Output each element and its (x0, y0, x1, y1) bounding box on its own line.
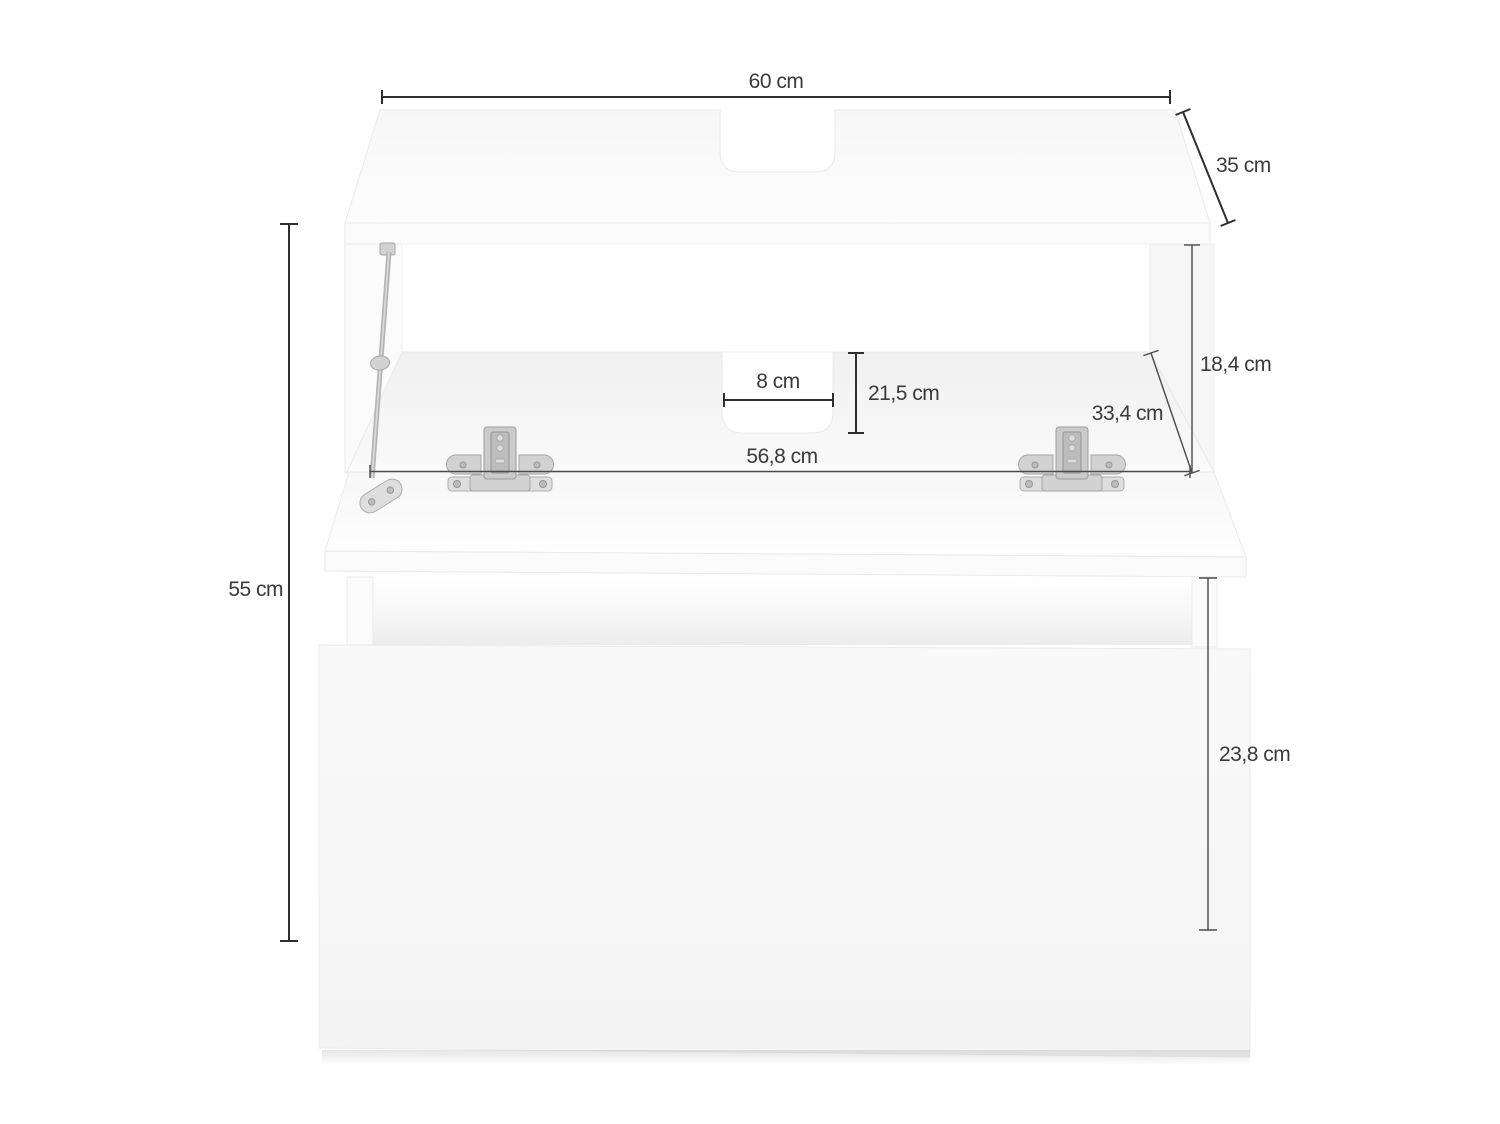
interior-width-label: 56,8 cm (746, 445, 817, 468)
gap-opening (373, 577, 1192, 645)
overall-height-label: 55 cm (228, 578, 283, 601)
vanity-cabinet (319, 110, 1250, 1066)
dimension-cutout-width: 8 cm (724, 370, 833, 407)
drawer-height-label: 23,8 cm (1219, 743, 1290, 766)
drawer-shadow (322, 1050, 1250, 1066)
interior-depth-label: 33,4 cm (1092, 402, 1163, 425)
gap-right-stile (1192, 577, 1217, 647)
interior-height-label: 18,4 cm (1200, 353, 1271, 376)
top-panel-front-edge (345, 223, 1210, 244)
dimension-overall-width: 60 cm (382, 70, 1170, 104)
overall-depth-label: 35 cm (1216, 154, 1271, 177)
cutout-depth-label: 21,5 cm (868, 382, 939, 405)
cutout-width-label: 8 cm (756, 370, 800, 393)
gap-left-stile (347, 577, 373, 645)
top-panel-surface (345, 110, 1210, 223)
dimension-overall-height: 55 cm (228, 224, 298, 941)
overall-width-label: 60 cm (749, 70, 804, 93)
drawer-front (319, 645, 1250, 1057)
product-dimension-diagram: 60 cm 35 cm 55 cm 8 cm (0, 0, 1500, 1124)
compartment-back-wall (402, 244, 1150, 352)
